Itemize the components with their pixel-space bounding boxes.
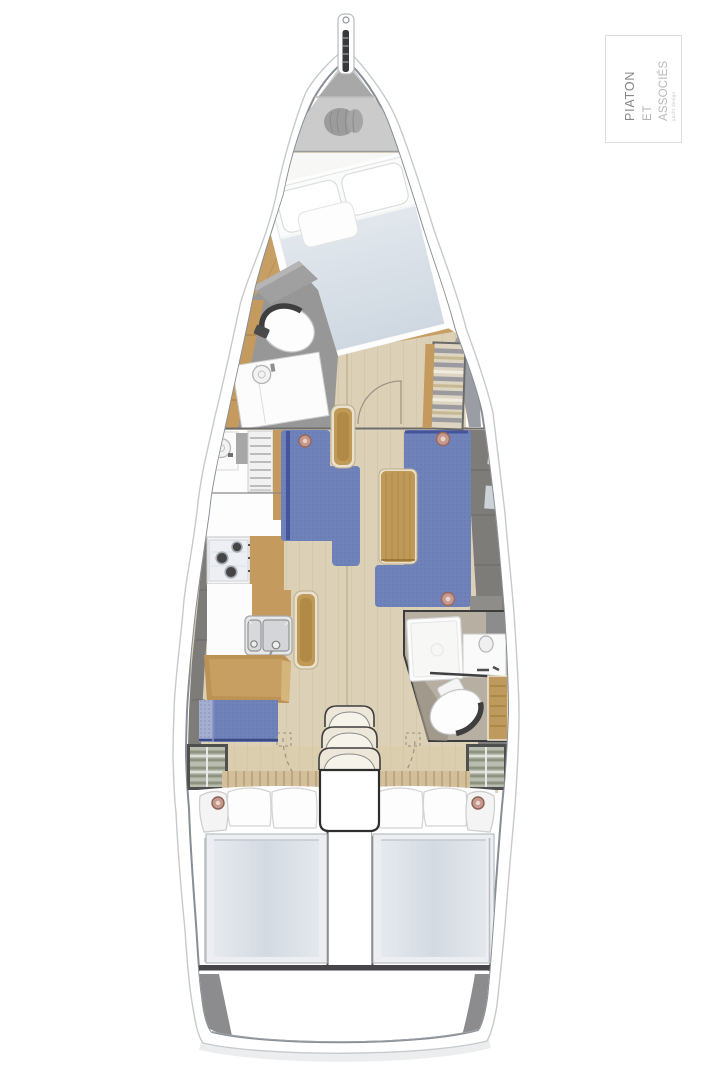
svg-text:PIATON: PIATON (623, 71, 637, 121)
svg-text:ET: ET (642, 105, 654, 121)
svg-text:ASSOCIÉS: ASSOCIÉS (657, 60, 670, 121)
svg-text:yacht design: yacht design (671, 91, 676, 121)
